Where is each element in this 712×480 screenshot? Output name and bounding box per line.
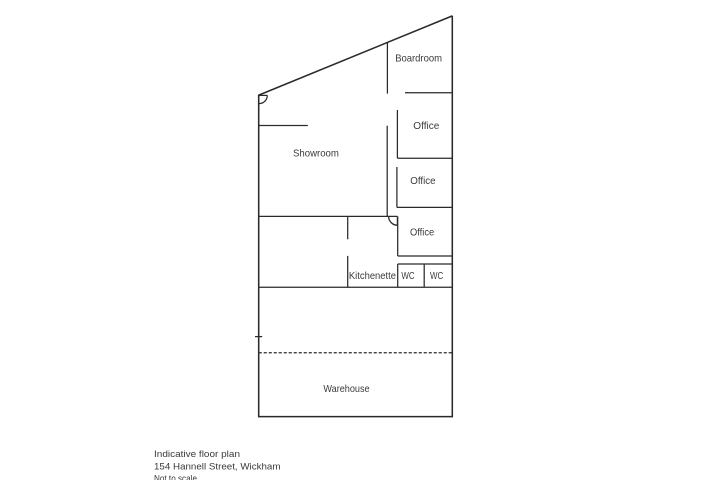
svg-text:Boardroom: Boardroom (395, 54, 442, 65)
svg-text:Indicative floor plan: Indicative floor plan (154, 449, 240, 460)
svg-text:Office: Office (410, 176, 436, 187)
svg-text:Warehouse: Warehouse (323, 384, 369, 395)
svg-text:Not to scale: Not to scale (154, 474, 197, 480)
svg-text:WC: WC (401, 271, 415, 282)
svg-text:Office: Office (410, 228, 434, 239)
svg-text:WC: WC (430, 271, 444, 282)
svg-text:Kitchenette: Kitchenette (349, 271, 396, 282)
svg-text:Office: Office (413, 121, 439, 132)
svg-text:Showroom: Showroom (293, 149, 339, 160)
svg-text:154 Hannell Street, Wickham: 154 Hannell Street, Wickham (154, 462, 281, 473)
